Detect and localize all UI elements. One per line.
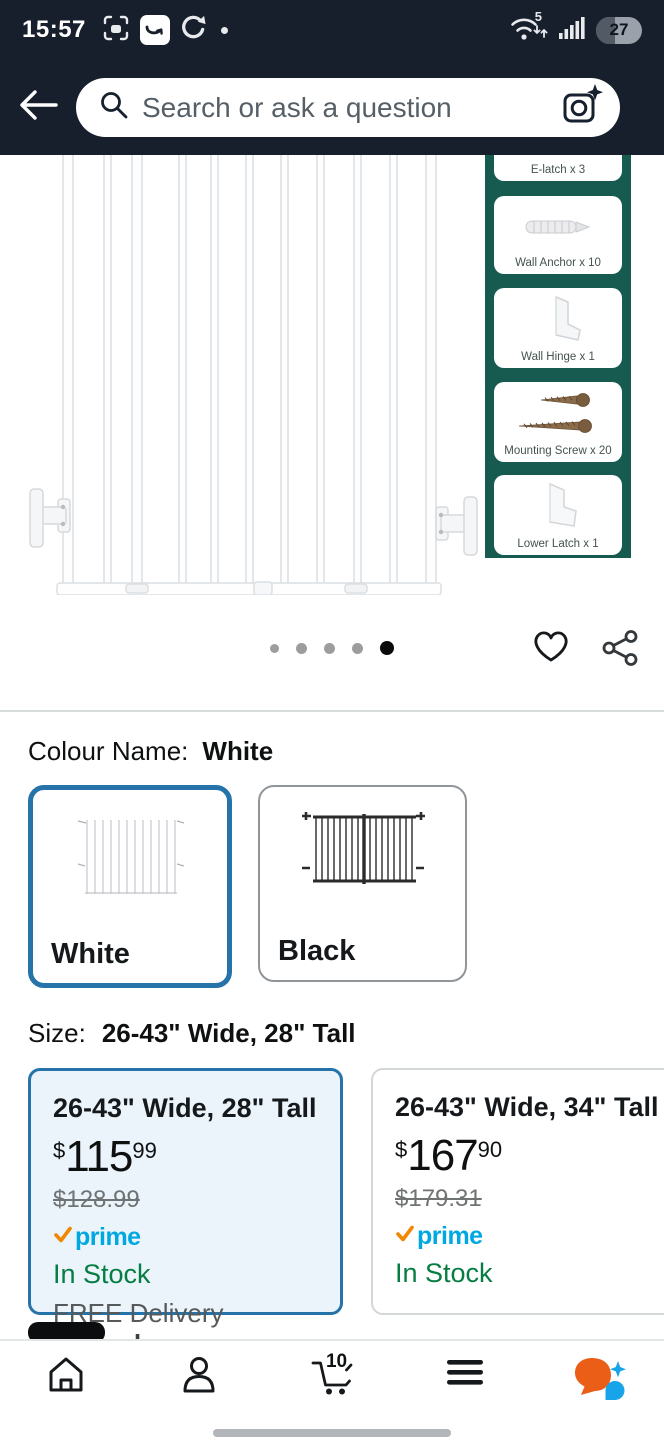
nav-cart-button[interactable]: 10 (266, 1341, 399, 1404)
part-label: Wall Hinge x 1 (521, 351, 595, 368)
colour-swatch-black[interactable]: Black (258, 785, 467, 982)
wall-anchor-image (522, 196, 594, 257)
nav-rufus-button[interactable] (531, 1341, 664, 1408)
sync-icon (180, 14, 207, 46)
colour-name-heading: Colour Name:White (28, 736, 273, 767)
size-option-title: 26-43" Wide, 34" Tall (395, 1092, 664, 1123)
prime-check-icon (395, 1225, 415, 1248)
page-dot (270, 644, 279, 653)
camera-lens-button[interactable] (558, 82, 604, 133)
swatch-label: White (51, 938, 130, 971)
cart-count-badge: 10 (326, 1351, 347, 1373)
battery-percent: 27 (610, 20, 629, 40)
availability: In Stock (53, 1259, 340, 1290)
prime-badge: prime (395, 1222, 664, 1251)
list-price: $128.99 (53, 1186, 340, 1214)
product-image-area[interactable]: E-latch x 3 Wall Anchor x 10 (0, 155, 664, 710)
wifi-badge: 5 (535, 9, 542, 24)
amazon-product-page: 15:57 (0, 0, 664, 1440)
nav-profile-button[interactable] (133, 1341, 266, 1400)
swatch-label: Black (278, 935, 355, 968)
part-label: Mounting Screw x 20 (504, 445, 611, 462)
price-whole: 167 (407, 1131, 477, 1180)
price-whole: 115 (65, 1132, 132, 1181)
colour-swatch-white[interactable]: White (28, 785, 232, 988)
price-currency: $ (395, 1137, 407, 1162)
black-gate-thumbnail (260, 803, 465, 903)
price-currency: $ (53, 1138, 65, 1163)
wifi-icon: 5 (510, 12, 550, 49)
size-label: Size: (28, 1018, 86, 1048)
prime-badge: prime (53, 1223, 340, 1252)
prime-label: prime (75, 1223, 141, 1252)
page-dot-active (380, 641, 394, 655)
colour-value: White (202, 736, 273, 766)
section-divider (0, 710, 664, 712)
size-option-34-tall[interactable]: 26-43" Wide, 34" Tall $16790 $179.31 pri… (371, 1068, 664, 1315)
back-arrow-icon (16, 86, 60, 129)
part-card-wall-hinge: Wall Hinge x 1 (494, 288, 622, 368)
size-heading: Size:26-43" Wide, 28" Tall (28, 1018, 356, 1049)
price-cents: 90 (478, 1137, 502, 1162)
home-indicator-bar (213, 1429, 451, 1437)
gallery-controls (0, 627, 664, 673)
size-value: 26-43" Wide, 28" Tall (102, 1018, 356, 1048)
part-card-wall-anchor: Wall Anchor x 10 (494, 196, 622, 274)
white-gate-thumbnail (33, 806, 227, 911)
page-dot (352, 643, 363, 654)
nav-menu-button[interactable] (398, 1341, 531, 1394)
prime-label: prime (417, 1222, 483, 1251)
colour-label: Colour Name: (28, 736, 188, 766)
list-price: $179.31 (395, 1185, 664, 1213)
search-header (0, 60, 664, 155)
status-bar: 15:57 (0, 0, 664, 60)
price: $16790 (395, 1131, 664, 1181)
nav-home-button[interactable] (0, 1341, 133, 1400)
prime-check-icon (53, 1226, 73, 1249)
part-label: E-latch x 3 (531, 164, 585, 181)
signal-icon (559, 15, 587, 46)
magnifier-icon (98, 89, 130, 126)
clock: 15:57 (22, 16, 86, 44)
search-bar[interactable] (76, 78, 620, 137)
part-label: Lower Latch x 1 (517, 538, 598, 555)
profile-icon (179, 1355, 219, 1400)
size-option-title: 26-43" Wide, 28" Tall (53, 1093, 340, 1124)
menu-icon (445, 1355, 485, 1394)
availability: In Stock (395, 1258, 664, 1289)
parts-list-panel: E-latch x 3 Wall Anchor x 10 (485, 155, 631, 558)
part-card-mounting-screw: Mounting Screw x 20 (494, 382, 622, 462)
page-dot (324, 643, 335, 654)
wishlist-heart-button[interactable] (530, 627, 572, 669)
mounting-screw-image (511, 382, 605, 445)
status-bar-right: 5 27 (510, 12, 642, 49)
amazon-app-icon (140, 15, 170, 45)
back-button[interactable] (0, 86, 76, 129)
rufus-icon (570, 1355, 626, 1408)
price-cents: 99 (132, 1138, 156, 1163)
notification-dot (221, 27, 228, 34)
part-card-e-latch: E-latch x 3 (494, 155, 622, 181)
page-dot (296, 643, 307, 654)
gallery-page-dots (270, 641, 394, 655)
wall-hinge-image (528, 288, 588, 351)
gate-product-image (0, 155, 485, 595)
part-label: Wall Anchor x 10 (515, 257, 601, 274)
battery-icon: 27 (596, 17, 642, 44)
home-icon (45, 1355, 87, 1400)
bottom-navigation: 10 (0, 1339, 664, 1440)
share-button[interactable] (601, 629, 641, 669)
part-card-lower-latch: Lower Latch x 1 (494, 475, 622, 555)
lower-latch-image (530, 475, 586, 538)
status-bar-left: 15:57 (22, 14, 228, 47)
screenshot-icon (102, 14, 130, 47)
search-input[interactable] (142, 92, 558, 124)
size-option-28-tall[interactable]: 26-43" Wide, 28" Tall $11599 $128.99 pri… (28, 1068, 343, 1315)
price: $11599 (53, 1132, 340, 1182)
